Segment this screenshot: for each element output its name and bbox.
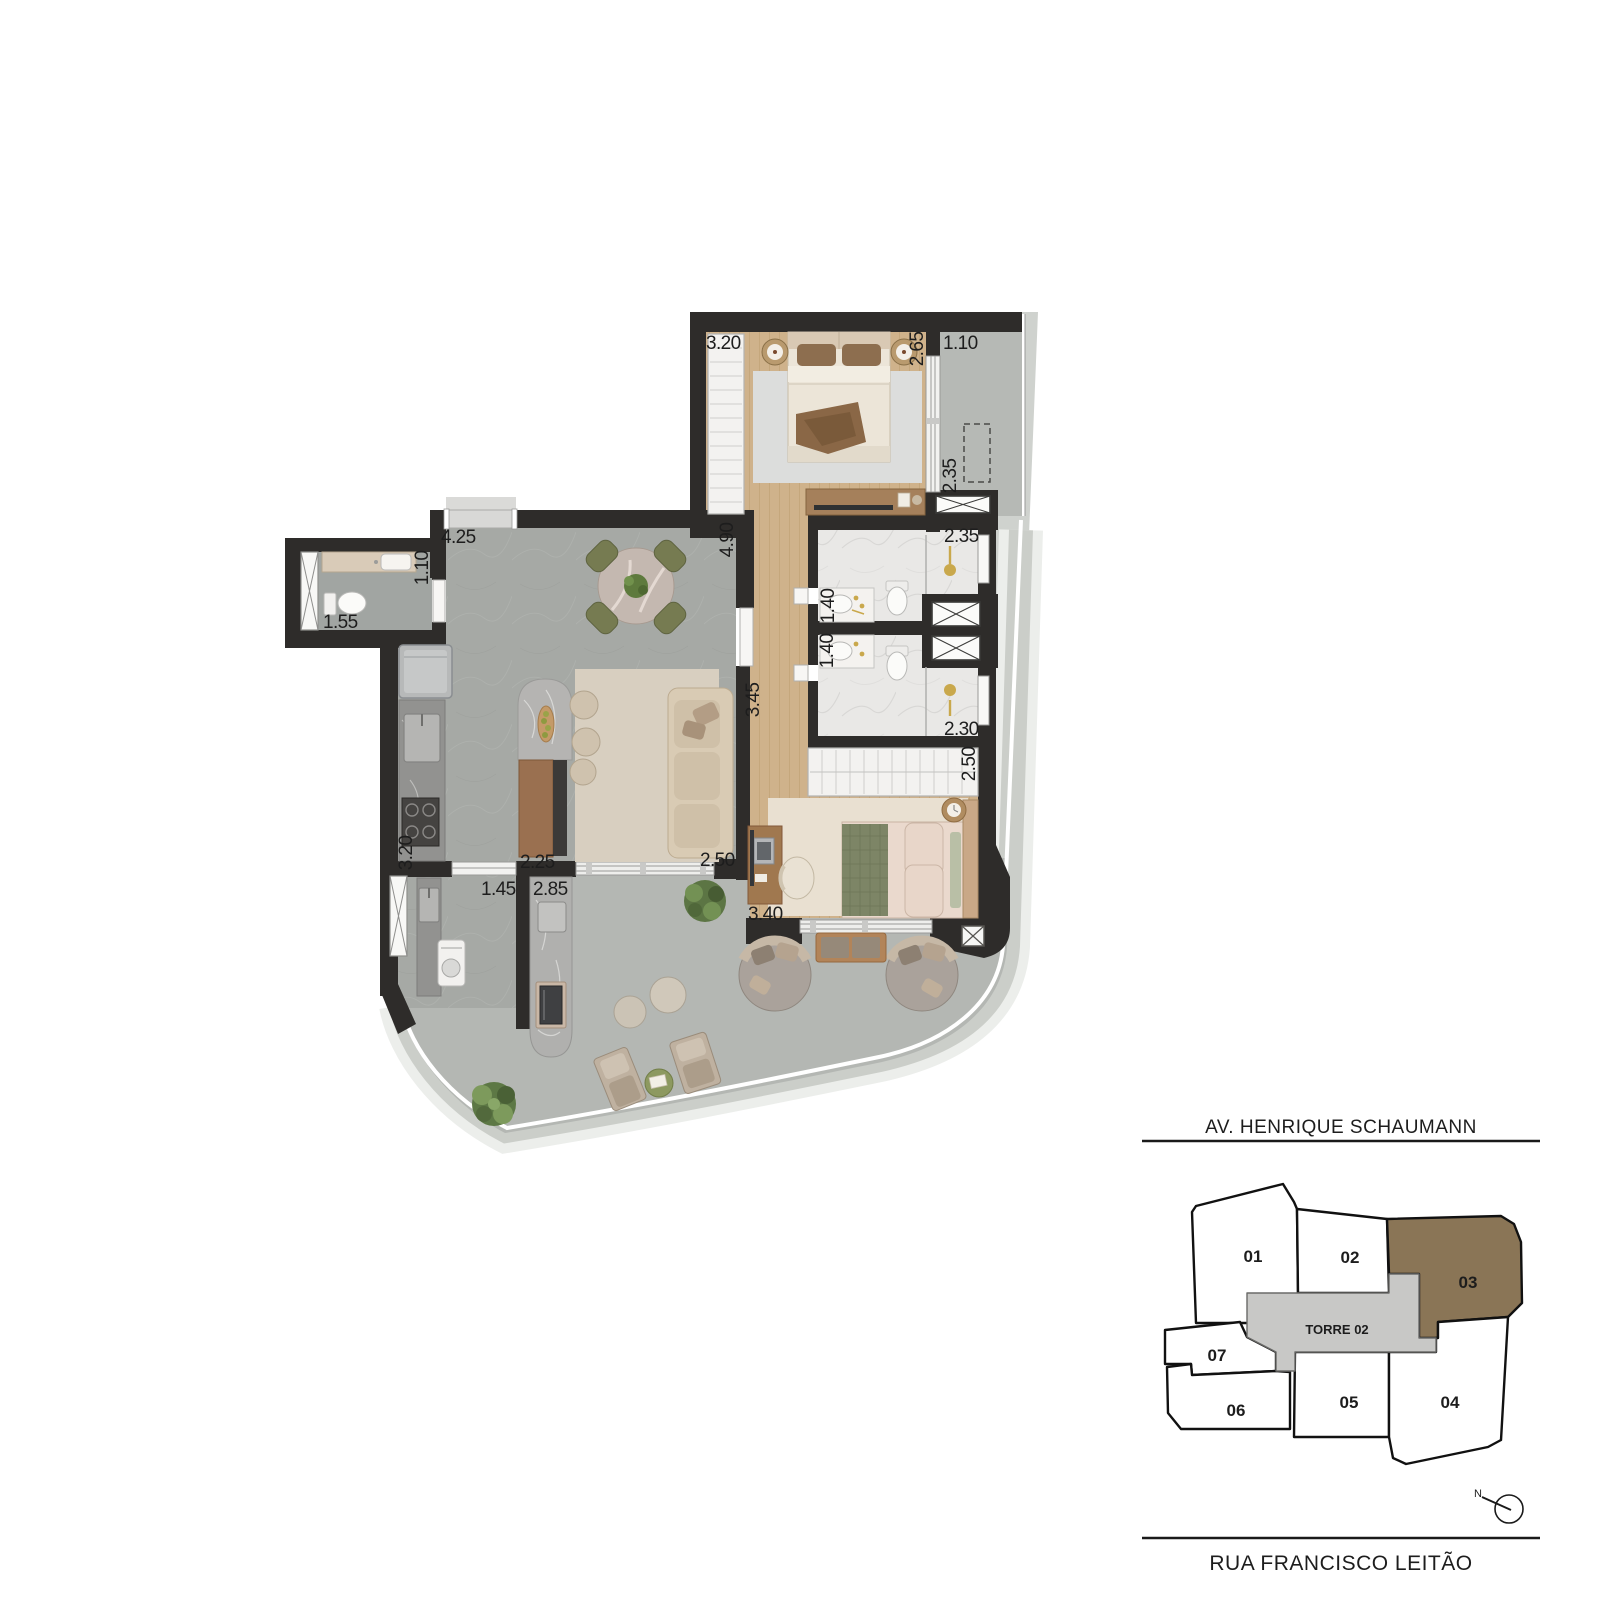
svg-text:04: 04	[1441, 1393, 1460, 1412]
svg-text:1.45: 1.45	[481, 879, 516, 900]
svg-text:02: 02	[1341, 1248, 1360, 1267]
svg-text:2.25: 2.25	[520, 852, 555, 873]
svg-text:4.25: 4.25	[441, 527, 476, 548]
svg-text:1.40: 1.40	[817, 634, 838, 669]
svg-text:06: 06	[1227, 1401, 1246, 1420]
svg-text:2.50: 2.50	[700, 850, 735, 871]
svg-text:1.55: 1.55	[323, 612, 358, 633]
svg-text:07: 07	[1208, 1346, 1227, 1365]
svg-text:3.45: 3.45	[743, 683, 764, 718]
svg-text:3.20: 3.20	[706, 333, 741, 354]
svg-text:1.10: 1.10	[412, 551, 433, 586]
svg-text:2.35: 2.35	[940, 459, 961, 494]
svg-text:2.50: 2.50	[959, 747, 980, 782]
svg-text:01: 01	[1244, 1247, 1263, 1266]
svg-text:AV. HENRIQUE SCHAUMANN: AV. HENRIQUE SCHAUMANN	[1205, 1117, 1477, 1138]
svg-text:2.30: 2.30	[944, 719, 979, 740]
svg-text:3.40: 3.40	[748, 904, 783, 925]
svg-text:1.10: 1.10	[943, 333, 978, 354]
svg-text:1.40: 1.40	[818, 589, 839, 624]
svg-text:4.90: 4.90	[717, 523, 738, 558]
svg-text:05: 05	[1340, 1393, 1359, 1412]
svg-text:TORRE 02: TORRE 02	[1305, 1322, 1368, 1337]
svg-text:2.65: 2.65	[907, 332, 928, 367]
svg-text:N: N	[1474, 1488, 1482, 1500]
svg-text:3.20: 3.20	[396, 836, 417, 871]
svg-text:03: 03	[1459, 1273, 1478, 1292]
svg-text:2.85: 2.85	[533, 879, 568, 900]
svg-text:RUA FRANCISCO LEITÃO: RUA FRANCISCO LEITÃO	[1209, 1551, 1472, 1575]
svg-text:2.35: 2.35	[944, 526, 979, 547]
